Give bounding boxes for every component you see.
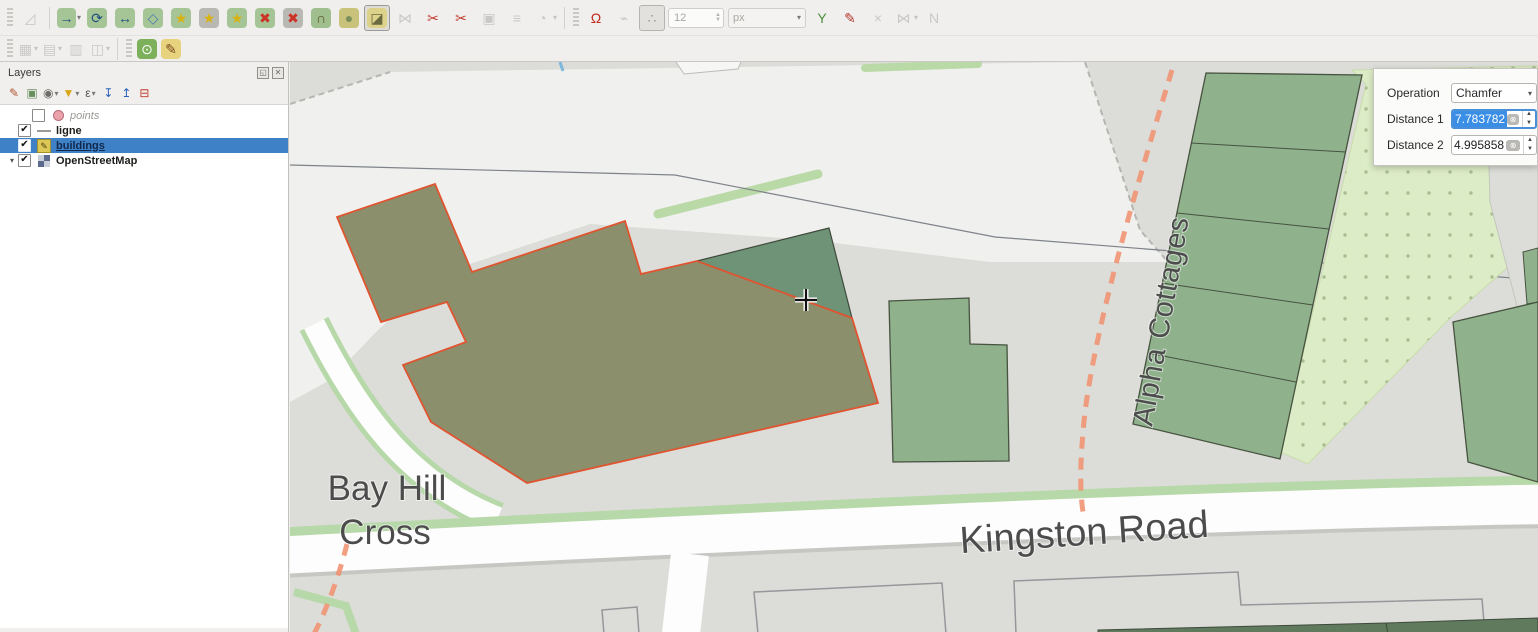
close-panel-icon[interactable]: ✕ — [272, 67, 284, 79]
fill-ring-icon: ★ — [227, 8, 247, 28]
edit-osm-map-button[interactable]: ✎ — [160, 38, 182, 60]
operation-combobox[interactable]: Chamfer ▾ — [1451, 83, 1537, 103]
vertex-tool-icon: ⋈ — [395, 8, 415, 28]
side-road — [681, 554, 690, 632]
float-panel-icon[interactable]: ◱ — [257, 67, 269, 79]
chevron-down-icon: ▾ — [797, 13, 801, 22]
avoid-overlap-button[interactable]: ✎ — [837, 5, 863, 31]
open-layer-styling-icon: ✎ — [9, 86, 19, 100]
manage-map-themes-icon[interactable]: ◉▾ — [42, 85, 60, 101]
move-feature-button[interactable]: →▾ — [56, 5, 82, 31]
distance1-value: 7.783782 — [1453, 111, 1507, 127]
distance1-label: Distance 1 — [1387, 112, 1447, 126]
add-group-icon: ▣ — [26, 86, 37, 100]
layer-label: buildings — [56, 140, 105, 152]
remove-layer-icon: ⊟ — [139, 86, 149, 100]
collapse-all-icon[interactable]: ↥ — [118, 85, 134, 101]
simplify-feature-icon: ◇ — [143, 8, 163, 28]
split-parts-icon: ✂ — [451, 8, 471, 28]
snapping-tolerance-input[interactable]: 12▲▼ — [668, 8, 724, 28]
raster-tools-button[interactable]: ▦▾ — [17, 38, 39, 60]
snapping-on-intersection-icon: ∴ — [642, 8, 662, 28]
spin-down-icon[interactable]: ▼ — [1523, 119, 1535, 128]
offset-curve-button[interactable]: ∩ — [308, 5, 334, 31]
self-snapping-icon: ⌁ — [614, 8, 634, 28]
delete-part-icon: ✖ — [283, 8, 303, 28]
clear-value-icon[interactable]: ⊗ — [1506, 140, 1520, 151]
operation-value: Chamfer — [1456, 86, 1502, 100]
add-part-button[interactable]: ★ — [196, 5, 222, 31]
layer-item-ligne[interactable]: ✔ligne — [0, 123, 288, 138]
merge-features-icon: ▣ — [479, 8, 499, 28]
open-layer-styling-icon[interactable]: ✎ — [6, 85, 22, 101]
expander-icon[interactable]: ▾ — [6, 156, 18, 165]
enable-advanced-digitizing-button[interactable]: ◿ — [17, 5, 43, 31]
table-tools-button[interactable]: ▤▾ — [41, 38, 63, 60]
layer-visibility-checkbox[interactable]: ✔ — [18, 139, 31, 152]
qgis-window: ◿→▾⟳↔◇★★★✖✖∩●◪⋈✂✂▣≡◔▾Ω⌁∴12▲▼px▾Y✎×⋈▾N ▦▾… — [0, 0, 1538, 632]
chevron-down-icon: ▾ — [553, 13, 557, 22]
chevron-down-icon: ▾ — [54, 89, 58, 98]
snapping-to-grid-icon: N — [924, 8, 944, 28]
layer-edit-symbol-icon: ✎ — [36, 139, 52, 153]
chevron-down-icon: ▾ — [914, 13, 918, 22]
enable-tracing-icon: Y — [812, 8, 832, 28]
offset-curve-icon: ∩ — [311, 8, 331, 28]
distance2-value: 4.995858 — [1452, 137, 1506, 153]
map-canvas[interactable]: Bay Hill Cross Kingston Road Alpha Cotta… — [290, 62, 1538, 632]
filter-legend-icon[interactable]: ▼▾ — [62, 85, 81, 101]
toolbar-separator — [117, 38, 118, 60]
toolbar-grip[interactable] — [126, 39, 132, 59]
fillet-chamfer-tool-button[interactable]: ◪ — [364, 5, 390, 31]
operation-label: Operation — [1387, 86, 1447, 100]
topological-editing-button[interactable]: ⋈▾ — [893, 5, 919, 31]
filter-legend-icon: ▼ — [63, 86, 75, 100]
rotate-point-symbols-icon: ◔ — [533, 8, 552, 28]
chevron-down-icon: ▾ — [1528, 89, 1532, 98]
chevron-down-icon: ▾ — [75, 89, 79, 98]
layer-visibility-checkbox[interactable] — [32, 109, 45, 122]
topological-editing-icon: ⋈ — [894, 8, 913, 28]
osm-place-search-button[interactable]: ⊙ — [136, 38, 158, 60]
layer-item-buildings[interactable]: ✔✎buildings — [0, 138, 288, 153]
rotate-point-symbols-button[interactable]: ◔▾ — [532, 5, 558, 31]
reshape-features-icon: ● — [339, 8, 359, 28]
distance2-spinbox[interactable]: 4.995858 ⊗ ▲ ▼ — [1451, 135, 1537, 155]
bay-hill-label-line2: Cross — [339, 513, 430, 552]
chevron-down-icon: ▾ — [92, 89, 96, 98]
enable-snapping-button[interactable]: Ω — [583, 5, 609, 31]
snapping-to-grid-button[interactable]: N — [921, 5, 947, 31]
self-snapping-button[interactable]: ⌁ — [611, 5, 637, 31]
fillet-operation-panel: Operation Chamfer ▾ Distance 1 7.783782 … — [1373, 68, 1538, 166]
layer-label: ligne — [56, 125, 82, 137]
layer-label: points — [70, 110, 99, 122]
expand-all-icon: ↧ — [103, 86, 113, 100]
merge-attributes-icon: ≡ — [507, 8, 527, 28]
bay-hill-label-line1: Bay Hill — [328, 469, 447, 508]
snapping-tolerance-input-spin-arrows[interactable]: ▲▼ — [715, 13, 721, 23]
filter-by-expression-icon[interactable]: ε▾ — [82, 85, 98, 101]
layer-point-symbol-icon — [50, 110, 66, 121]
split-features-button[interactable]: ✂ — [420, 5, 446, 31]
layer-label: OpenStreetMap — [56, 155, 137, 167]
layers-panel-toolbar: ✎▣◉▾▼▾ε▾↧↥⊟ — [0, 82, 288, 104]
advanced-digitizing-toolbar: ◿→▾⟳↔◇★★★✖✖∩●◪⋈✂✂▣≡◔▾Ω⌁∴12▲▼px▾Y✎×⋈▾N — [0, 0, 1538, 36]
delete-ring-icon: ✖ — [255, 8, 275, 28]
add-ring-icon: ★ — [171, 8, 191, 28]
split-parts-button[interactable]: ✂ — [448, 5, 474, 31]
delete-part-button[interactable]: ✖ — [280, 5, 306, 31]
split-features-icon: ✂ — [423, 8, 443, 28]
clear-value-icon[interactable]: ⊗ — [1507, 114, 1519, 125]
diagram-tools-button[interactable]: ◫▾ — [89, 38, 111, 60]
avoid-overlap-icon: ✎ — [840, 8, 860, 28]
add-part-icon: ★ — [199, 8, 219, 28]
simplify-feature-button[interactable]: ◇ — [140, 5, 166, 31]
distance2-spin-arrows[interactable]: ▲ ▼ — [1523, 136, 1536, 154]
chevron-down-icon: ▾ — [106, 44, 110, 53]
snapping-tolerance-input-value: 12 — [674, 12, 686, 24]
fillet-chamfer-tool-icon: ◪ — [367, 8, 387, 28]
enable-snapping-icon: Ω — [586, 8, 606, 28]
merge-features-button[interactable]: ▣ — [476, 5, 502, 31]
enable-advanced-digitizing-icon: ◿ — [20, 8, 40, 28]
remove-unused-vertices-icon: × — [868, 8, 888, 28]
snapping-units-combo-value: px — [733, 12, 745, 24]
layer-visibility-checkbox[interactable]: ✔ — [18, 124, 31, 137]
manage-map-themes-icon: ◉ — [43, 86, 53, 100]
layer-visibility-checkbox[interactable]: ✔ — [18, 154, 31, 167]
layers-list: points✔ligne✔✎buildings▾✔OpenStreetMap — [0, 104, 288, 628]
chevron-down-icon: ▾ — [58, 44, 62, 53]
remove-layer-icon[interactable]: ⊟ — [136, 85, 152, 101]
spin-down-icon[interactable]: ▼ — [1524, 145, 1536, 154]
spin-up-icon[interactable]: ▲ — [1524, 136, 1536, 145]
enable-tracing-button[interactable]: Y — [809, 5, 835, 31]
distance1-spin-arrows[interactable]: ▲ ▼ — [1522, 110, 1535, 128]
rotate-feature-icon: ⟳ — [87, 8, 107, 28]
vertex-tool-button[interactable]: ⋈ — [392, 5, 418, 31]
layer-item-points[interactable]: points — [0, 108, 288, 123]
toolbar-grip[interactable] — [7, 8, 13, 28]
delete-ring-button[interactable]: ✖ — [252, 5, 278, 31]
diagram-tools-icon: ◫ — [90, 39, 105, 59]
toolbar-separator — [49, 7, 50, 29]
add-group-icon[interactable]: ▣ — [24, 85, 40, 101]
scale-feature-button[interactable]: ↔ — [112, 5, 138, 31]
layer-item-openstreetmap[interactable]: ▾✔OpenStreetMap — [0, 153, 288, 168]
scale-feature-icon: ↔ — [115, 8, 135, 28]
remove-unused-vertices-button[interactable]: × — [865, 5, 891, 31]
layers-panel-title: Layers — [8, 67, 41, 79]
edit-osm-map-icon: ✎ — [161, 39, 181, 59]
chevron-down-icon: ▾ — [34, 44, 38, 53]
merge-attributes-button[interactable]: ≡ — [504, 5, 530, 31]
fill-ring-button[interactable]: ★ — [224, 5, 250, 31]
add-ring-button[interactable]: ★ — [168, 5, 194, 31]
rotate-feature-button[interactable]: ⟳ — [84, 5, 110, 31]
raster-tools-icon: ▦ — [18, 39, 33, 59]
layers-panel: Layers ◱✕ ✎▣◉▾▼▾ε▾↧↥⊟ points✔ligne✔✎buil… — [0, 62, 289, 632]
move-feature-icon: → — [57, 8, 76, 28]
distance1-spinbox[interactable]: 7.783782 ⊗ ▲ ▼ — [1451, 109, 1537, 129]
plugins-toolbar: ▦▾▤▾▥◫▾⊙✎ — [0, 36, 1538, 62]
spin-up-icon[interactable]: ▲ — [1523, 110, 1535, 119]
snapping-units-combo[interactable]: px▾ — [728, 8, 806, 28]
chevron-down-icon: ▾ — [77, 13, 81, 22]
layer-line-symbol-icon — [36, 130, 52, 132]
distance2-label: Distance 2 — [1387, 138, 1447, 152]
snapping-on-intersection-button[interactable]: ∴ — [639, 5, 665, 31]
reshape-features-button[interactable]: ● — [336, 5, 362, 31]
expand-all-icon[interactable]: ↧ — [100, 85, 116, 101]
layer-osm-symbol-icon — [36, 155, 52, 167]
collapse-all-icon: ↥ — [121, 86, 131, 100]
hedge-strip-top — [865, 64, 978, 68]
table-tools-icon: ▤ — [42, 39, 57, 59]
toolbar-grip[interactable] — [573, 8, 579, 28]
filter-by-expression-icon: ε — [85, 86, 90, 100]
geometry-checker-button[interactable]: ▥ — [65, 38, 87, 60]
toolbar-grip[interactable] — [7, 39, 13, 59]
toolbar-separator — [564, 7, 565, 29]
geometry-checker-icon: ▥ — [66, 39, 86, 59]
osm-place-search-icon: ⊙ — [137, 39, 157, 59]
